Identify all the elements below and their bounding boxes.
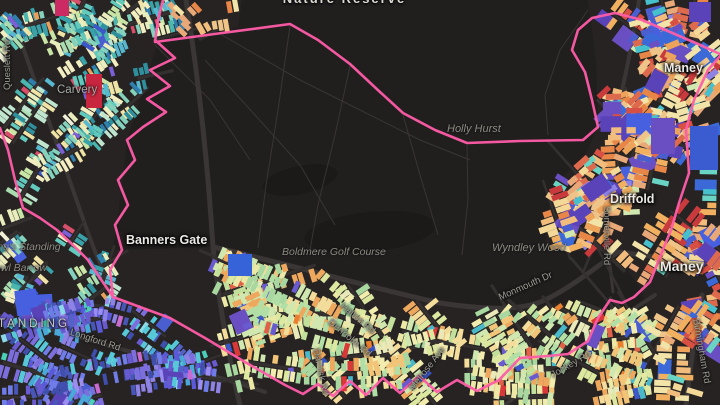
map-root: Nature Reserve Carvery Holly Hurst Maney… bbox=[0, 0, 720, 405]
map-canvas[interactable] bbox=[0, 0, 720, 405]
